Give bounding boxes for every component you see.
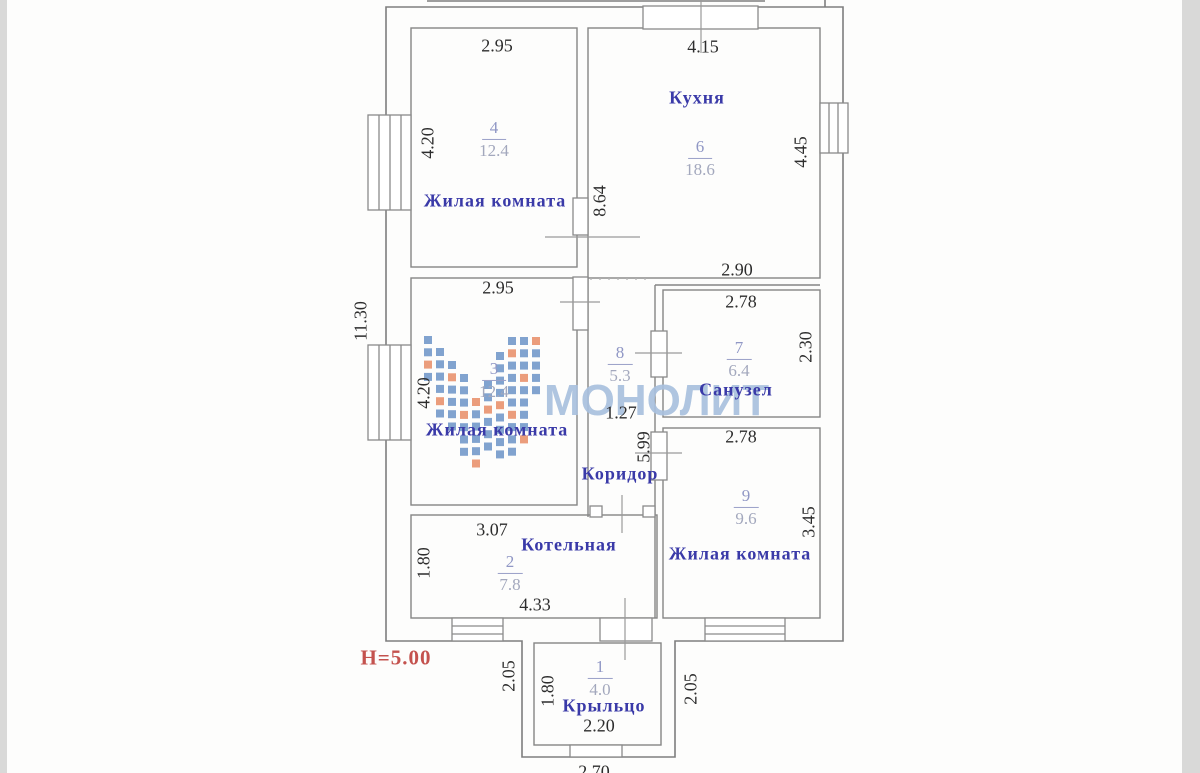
room-area: 4.0 bbox=[588, 679, 613, 700]
dim-corridor-width: 1.27 bbox=[605, 403, 637, 424]
room-number: 9 bbox=[734, 486, 759, 508]
dim-porch-inner: 2.20 bbox=[583, 716, 615, 737]
dim-room4-top: 2.95 bbox=[481, 36, 513, 57]
room-area: 6.4 bbox=[727, 360, 752, 381]
room-label-kitchen: Кухня bbox=[669, 88, 725, 109]
room-label-living3: Жилая комната bbox=[669, 544, 812, 565]
dim-kitchen-top: 4.15 bbox=[687, 37, 719, 58]
room-label-bathroom: Санузел bbox=[699, 380, 773, 401]
floorplan-page: МОНОЛИТ Жилая комната Кухня Жилая комнат… bbox=[0, 0, 1200, 773]
room-stat-bathroom: 7 6.4 bbox=[727, 338, 752, 380]
room-stat-living3: 9 9.6 bbox=[734, 486, 759, 528]
dim-left-total: 11.30 bbox=[351, 301, 372, 341]
room-stat-living2: 3 12.4 bbox=[479, 359, 509, 401]
dim-room4-left: 4.20 bbox=[418, 127, 439, 159]
dim-porch-gap-left: 2.05 bbox=[499, 660, 520, 692]
room-area: 5.3 bbox=[608, 365, 633, 386]
dim-corridor-height: 5.99 bbox=[634, 431, 655, 463]
room-label-living2: Жилая комната bbox=[426, 420, 569, 441]
dim-room9-top: 2.78 bbox=[725, 427, 757, 448]
room-stat-boiler: 2 7.8 bbox=[498, 552, 523, 594]
dim-porch-left: 1.80 bbox=[538, 675, 559, 707]
dim-porch-gap-right: 2.05 bbox=[681, 673, 702, 705]
height-note: H=5.00 bbox=[360, 646, 431, 671]
dim-boiler-left: 1.80 bbox=[414, 547, 435, 579]
room-area: 9.6 bbox=[734, 508, 759, 529]
room-area: 7.8 bbox=[498, 574, 523, 595]
room-stat-kitchen: 6 18.6 bbox=[685, 137, 715, 179]
dim-room3-left: 4.20 bbox=[414, 377, 435, 409]
dim-bath-right: 2.30 bbox=[796, 331, 817, 363]
room-stat-corridor: 8 5.3 bbox=[608, 343, 633, 385]
dim-room3-top: 2.95 bbox=[482, 278, 514, 299]
room-number: 2 bbox=[498, 552, 523, 574]
room-number: 3 bbox=[482, 359, 507, 381]
dim-boiler-top: 3.07 bbox=[476, 520, 508, 541]
room-stat-living1: 4 12.4 bbox=[479, 118, 509, 160]
room-number: 6 bbox=[688, 137, 713, 159]
dim-kitchen-right: 4.45 bbox=[791, 136, 812, 168]
dim-inner-wall: 8.64 bbox=[590, 185, 611, 217]
room-area: 12.4 bbox=[479, 140, 509, 161]
dim-room9-right: 3.45 bbox=[799, 506, 820, 538]
dim-boiler-bottom: 4.33 bbox=[519, 595, 551, 616]
dim-kitchen-bottom: 2.90 bbox=[721, 260, 753, 281]
dim-bath-top: 2.78 bbox=[725, 292, 757, 313]
room-label-corridor: Коридор bbox=[582, 464, 659, 485]
room-area: 12.4 bbox=[479, 381, 509, 402]
room-stat-porch: 1 4.0 bbox=[588, 657, 613, 699]
room-number: 4 bbox=[482, 118, 507, 140]
dim-porch-outer: 2.70 bbox=[578, 762, 610, 773]
room-label-boiler: Котельная bbox=[521, 535, 616, 556]
room-label-living1: Жилая комната bbox=[424, 191, 567, 212]
room-number: 8 bbox=[608, 343, 633, 365]
room-number: 1 bbox=[588, 657, 613, 679]
room-number: 7 bbox=[727, 338, 752, 360]
room-area: 18.6 bbox=[685, 159, 715, 180]
